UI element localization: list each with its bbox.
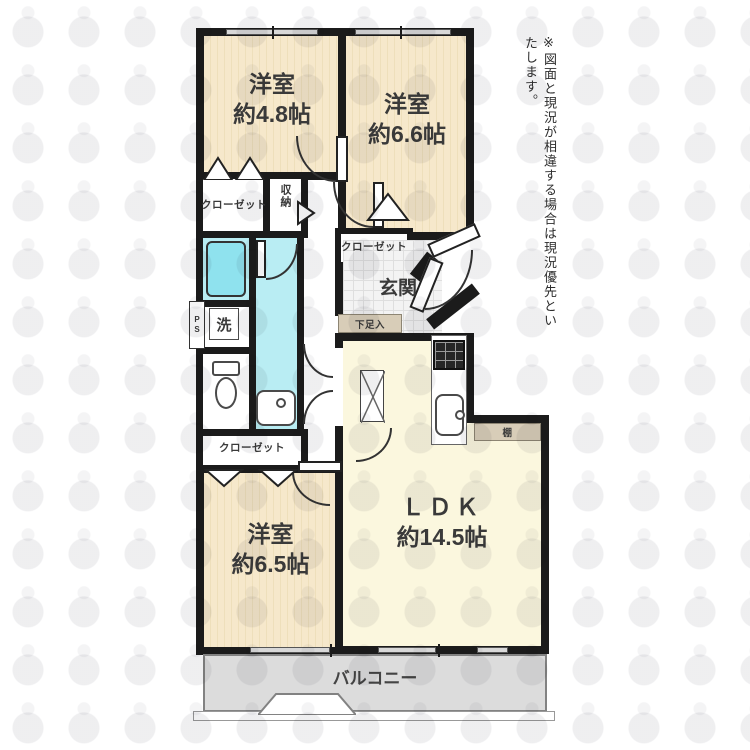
window-bottom-right bbox=[477, 647, 508, 653]
bedroom-top-left-size: 約4.8帖 bbox=[198, 100, 346, 130]
door-arc-hall-lower bbox=[303, 390, 333, 424]
window-tick-4 bbox=[438, 644, 440, 657]
bedroom-top-right-name: 洋室 bbox=[340, 90, 474, 120]
kitchen-faucet-icon bbox=[455, 410, 465, 420]
label-closet-top-left: クローゼット bbox=[198, 199, 270, 213]
window-top-right bbox=[355, 29, 451, 35]
bedroom-bottom-name: 洋室 bbox=[198, 520, 343, 550]
balcony-name: バルコニー bbox=[333, 669, 418, 688]
washbasin-icon bbox=[256, 390, 296, 426]
xbox-cross-icon bbox=[361, 371, 385, 423]
folding-door-closet-top-left-icon bbox=[202, 156, 268, 180]
floor-plan: 棚 下足入 洗 PS bbox=[0, 0, 750, 750]
laundry-pan: 洗 bbox=[209, 308, 239, 340]
label-closet-entrance: クローゼット bbox=[339, 241, 409, 255]
label-bedroom-top-right: 洋室 約6.6帖 bbox=[340, 90, 474, 150]
window-bottom-mid bbox=[378, 647, 436, 653]
window-bottom-left bbox=[250, 647, 330, 653]
closet-bottom-text: クローゼット bbox=[219, 442, 285, 454]
bedroom-top-left-name: 洋室 bbox=[198, 70, 346, 100]
entrance-name: 玄関 bbox=[379, 278, 417, 299]
ldk-size: 約14.5帖 bbox=[343, 523, 541, 553]
pipe-space-label: PS bbox=[193, 315, 202, 335]
folding-door-storage-icon bbox=[296, 200, 316, 226]
label-bedroom-bottom: 洋室 約6.5帖 bbox=[198, 520, 343, 580]
storage-text: 収納 bbox=[279, 184, 291, 208]
ldk-door-opening bbox=[335, 348, 343, 426]
label-closet-bottom: クローゼット bbox=[200, 442, 304, 456]
ldk-name: ＬＤＫ bbox=[343, 493, 541, 523]
door-leaf-bedroom-bottom bbox=[298, 461, 342, 472]
bedroom-bottom-size: 約6.5帖 bbox=[198, 550, 343, 580]
door-arc-hall-upper bbox=[303, 344, 333, 378]
laundry-label: 洗 bbox=[216, 314, 231, 335]
label-bedroom-top-left: 洋室 約4.8帖 bbox=[198, 70, 346, 130]
disclaimer-text: ※図面と現況が相違する場合は現況優先といたします。 bbox=[521, 36, 559, 336]
pipe-space-box: PS bbox=[189, 301, 205, 349]
ldk-storage-xbox bbox=[360, 370, 384, 422]
closet-top-left-text: クローゼット bbox=[201, 199, 267, 211]
door-leaf-bathroom bbox=[256, 240, 266, 278]
shoe-cabinet-label: 下足入 bbox=[355, 317, 385, 331]
wall-shelf-top bbox=[466, 415, 549, 423]
toilet-tank-icon bbox=[212, 361, 240, 376]
wall-ldk-bottom bbox=[335, 646, 549, 654]
toilet-bowl-icon bbox=[215, 377, 237, 409]
window-tick-2 bbox=[400, 26, 402, 39]
shelf-label: 棚 bbox=[502, 425, 512, 439]
wall-kitchen-right bbox=[466, 333, 474, 423]
label-balcony: バルコニー bbox=[203, 668, 547, 690]
label-ldk: ＬＤＫ 約14.5帖 bbox=[343, 493, 541, 553]
shoe-cabinet: 下足入 bbox=[338, 314, 402, 333]
folding-door-closet-bottom-icon-2 bbox=[258, 468, 298, 488]
label-storage: 収納 bbox=[277, 184, 293, 208]
closet-entrance-text: クローゼット bbox=[341, 241, 407, 253]
bedroom-top-right-size: 約6.6帖 bbox=[340, 120, 474, 150]
folding-door-closet-entrance-icon bbox=[366, 192, 410, 222]
stove-icon bbox=[433, 340, 465, 370]
window-tick-3 bbox=[330, 644, 332, 657]
balcony-hatch-notch bbox=[258, 691, 356, 715]
wall-ldk-right bbox=[541, 415, 549, 654]
bathtub-icon bbox=[206, 241, 246, 297]
washbasin-faucet-icon bbox=[276, 398, 286, 408]
disclaimer-span: ※図面と現況が相違する場合は現況優先といたします。 bbox=[523, 36, 557, 328]
balcony-outer-edge bbox=[193, 711, 555, 721]
label-entrance: 玄関 bbox=[360, 277, 436, 302]
folding-door-closet-bottom-icon-1 bbox=[204, 468, 244, 488]
shelf-cabinet: 棚 bbox=[474, 423, 541, 441]
window-tick-1 bbox=[272, 26, 274, 39]
wall-hall-entrance-stub bbox=[335, 266, 343, 316]
